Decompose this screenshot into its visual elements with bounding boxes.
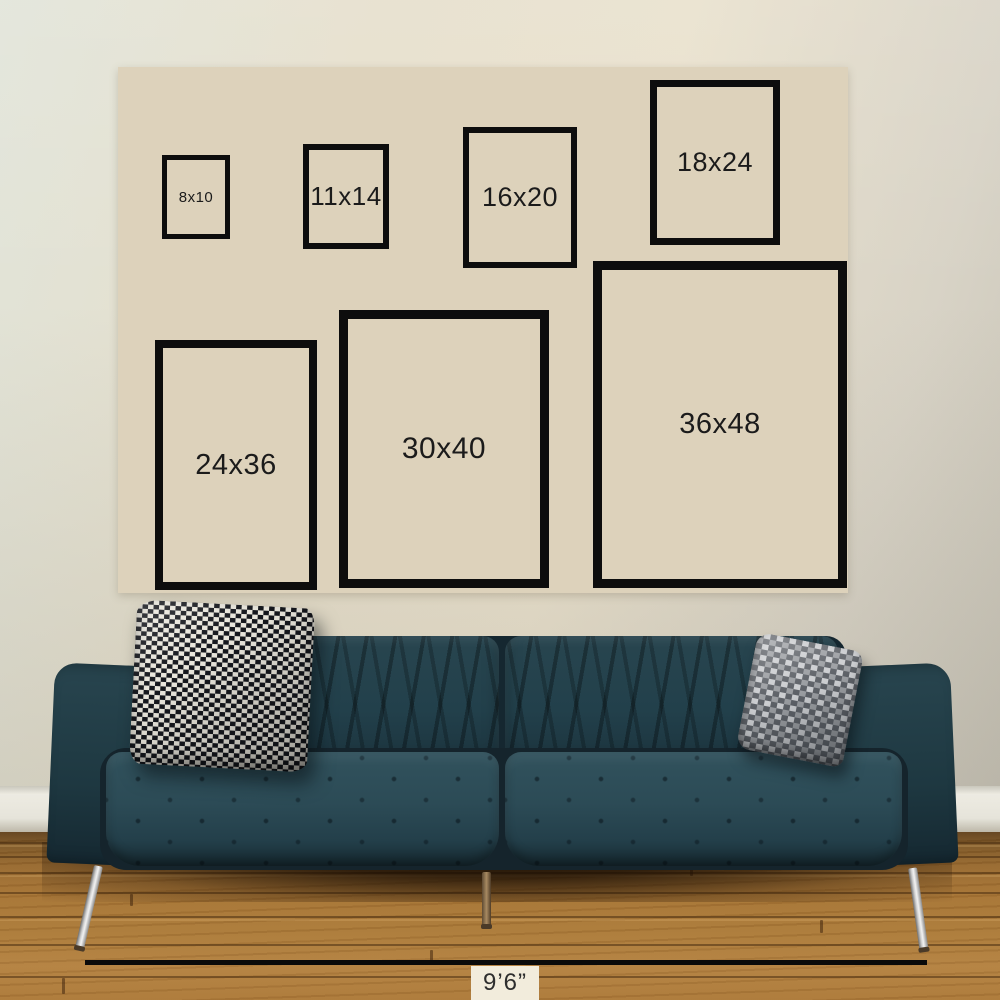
size-frame-11x14: 11x14 [303, 144, 389, 249]
size-label-24x36: 24x36 [195, 449, 277, 482]
sofa-leg-center [482, 872, 491, 926]
size-label-18x24: 18x24 [677, 147, 753, 178]
size-chart-panel: 8x10 11x14 16x20 18x24 24x36 30x40 36x48 [118, 67, 848, 593]
size-label-30x40: 30x40 [402, 432, 486, 466]
plank-line [0, 944, 1000, 946]
size-frame-24x36: 24x36 [155, 340, 317, 590]
size-label-11x14: 11x14 [310, 181, 381, 212]
plank-seam [820, 920, 823, 933]
sofa-seat-cushion-left [106, 752, 499, 866]
checkered-throw-pillow [129, 599, 315, 772]
room-scene: 8x10 11x14 16x20 18x24 24x36 30x40 36x48 [0, 0, 1000, 1000]
sofa-seat-cushion-right [505, 752, 902, 866]
size-label-36x48: 36x48 [679, 408, 761, 441]
grey-woven-throw-pillow [736, 632, 865, 768]
size-label-8x10: 8x10 [179, 189, 214, 206]
width-measurement-line [85, 960, 927, 965]
size-frame-8x10: 8x10 [162, 155, 230, 239]
size-frame-16x20: 16x20 [463, 127, 577, 268]
size-label-16x20: 16x20 [482, 182, 558, 213]
width-measurement-label: 9’6” [471, 966, 539, 1000]
size-frame-36x48: 36x48 [593, 261, 847, 588]
plank-line [0, 919, 1000, 921]
plank-seam [62, 978, 65, 994]
plank-line [0, 916, 1000, 918]
size-frame-18x24: 18x24 [650, 80, 780, 245]
size-frame-30x40: 30x40 [339, 310, 549, 588]
